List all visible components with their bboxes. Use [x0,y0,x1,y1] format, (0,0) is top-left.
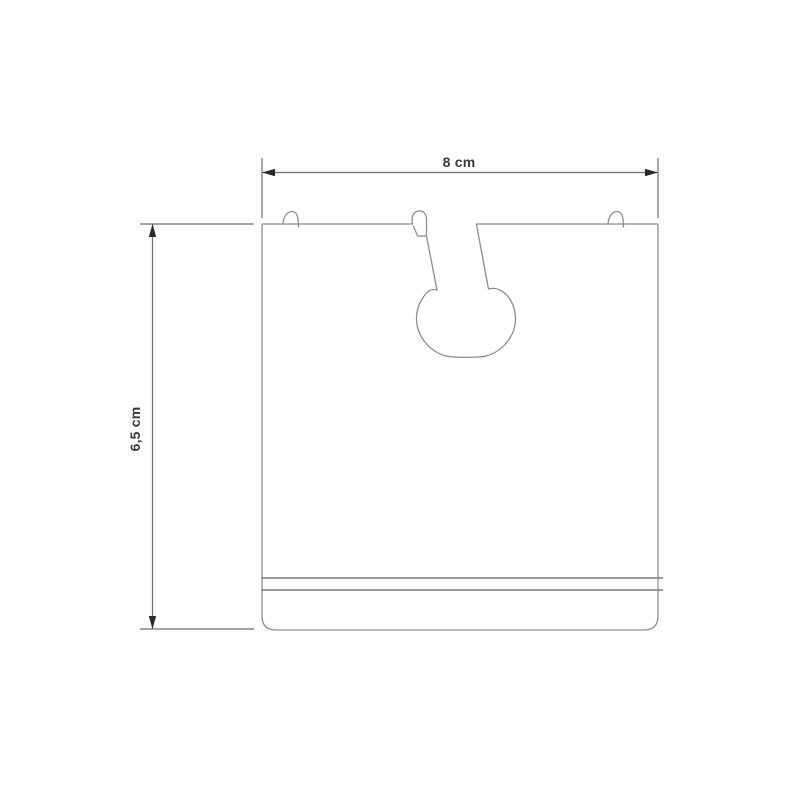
width-dimension-label: 8 cm [443,154,476,170]
arrow-right-icon [645,169,658,176]
product-body-outline [262,224,658,630]
arrow-down-icon [149,616,156,629]
right-hook-tab [608,212,624,228]
keyhole-hook-tab [412,211,426,236]
height-dimension-label: 6,5 cm [127,407,143,452]
dimension-diagram: 8 cm 6,5 cm [0,0,800,800]
shelf-lines-group [262,578,663,590]
arrow-left-icon [262,169,275,176]
left-hook-tab [283,212,299,228]
height-dimension-group [140,224,254,629]
arrow-up-icon [149,224,156,237]
product-outline-group [262,211,658,630]
technical-drawing-svg: 8 cm 6,5 cm [0,0,800,800]
keyhole-cutout [416,225,515,358]
